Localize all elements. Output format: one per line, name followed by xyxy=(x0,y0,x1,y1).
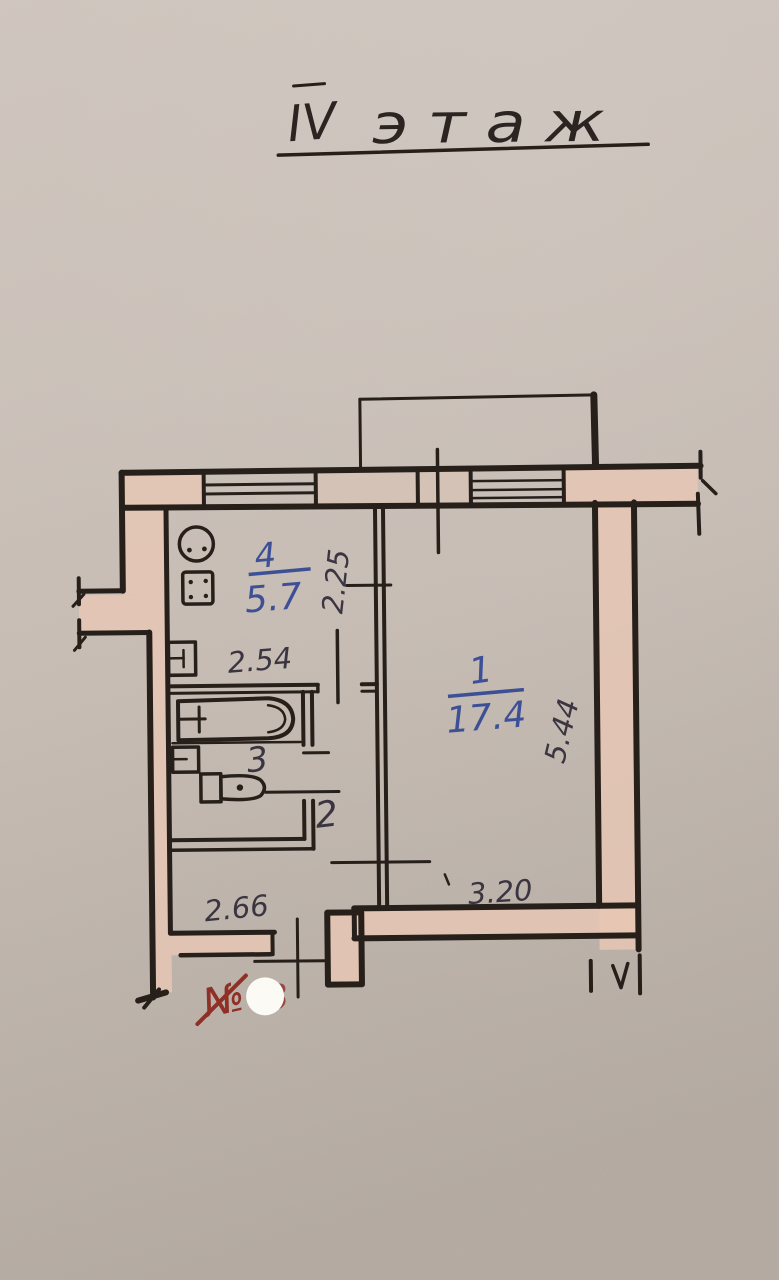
bathroom-right-wall-1a xyxy=(303,692,304,745)
left-stub-bottom-edge xyxy=(79,633,149,634)
balcony-right-edge xyxy=(594,395,596,466)
balcony-door-axis-line xyxy=(437,449,438,552)
kitchen-width-dimension: 2.54 xyxy=(226,641,293,680)
kitchen-south-wall-line-2 xyxy=(169,692,318,694)
kitchen-door-leaf xyxy=(337,631,338,703)
kitchen-window-line-2 xyxy=(204,493,316,494)
balcony-left-edge xyxy=(360,399,361,470)
hall-bottom-wall-top-edge xyxy=(171,932,274,933)
room1-width-dimension: 3.20 xyxy=(467,873,534,911)
floor-plan-drawing: IV этаж xyxy=(0,0,779,1280)
bathroom-shelf-line xyxy=(172,742,300,743)
room1-window-line-3 xyxy=(471,497,564,498)
hall-bottom-wall-fill xyxy=(171,932,272,955)
top-wall-fill-right xyxy=(564,467,698,503)
bathroom-number-label: 3 xyxy=(244,739,270,781)
bathroom-bottom-wall-1 xyxy=(170,839,304,840)
room1-bottom-wall-bottom-edge xyxy=(354,935,638,938)
room1-window-line-1 xyxy=(471,480,564,481)
hall-bottom-wall-bottom-edge xyxy=(181,954,271,955)
left-wall-outer-lower xyxy=(149,633,153,998)
entrance-door-axis xyxy=(297,919,298,997)
room1-window-line-2 xyxy=(471,489,564,490)
kitchen-area-label: 5.7 xyxy=(243,576,303,621)
scanned-floor-plan-page: IV этаж xyxy=(0,0,779,1280)
right-wall-inner-edge xyxy=(595,503,599,906)
hall-number-label: 2 xyxy=(313,793,340,836)
entrance-door-threshold xyxy=(255,961,325,962)
room1-area-label: 17.4 xyxy=(445,694,528,741)
title-roman-numeral: IV xyxy=(285,91,342,153)
hall-width-dimension: 2.66 xyxy=(203,888,271,928)
left-wall-fill-upper xyxy=(122,502,167,594)
top-wall-break-tick-2 xyxy=(698,494,699,534)
left-wall-outer-upper xyxy=(122,473,123,591)
room1-door-leaf xyxy=(332,862,430,863)
top-wall-fill-middle xyxy=(316,469,471,506)
bathroom-bottom-wall-2 xyxy=(171,849,314,850)
left-stub-fill xyxy=(79,594,167,631)
title-block: IV этаж xyxy=(278,80,649,157)
paper-grain xyxy=(0,0,779,1280)
toilet-door-leaf xyxy=(266,792,339,793)
bathroom-right-wall-1b xyxy=(312,692,313,745)
kitchen-window-line-1 xyxy=(204,484,316,485)
kitchen-south-wall-line-1 xyxy=(169,685,318,687)
kitchen-height-dimension: 2.25 xyxy=(315,547,356,615)
